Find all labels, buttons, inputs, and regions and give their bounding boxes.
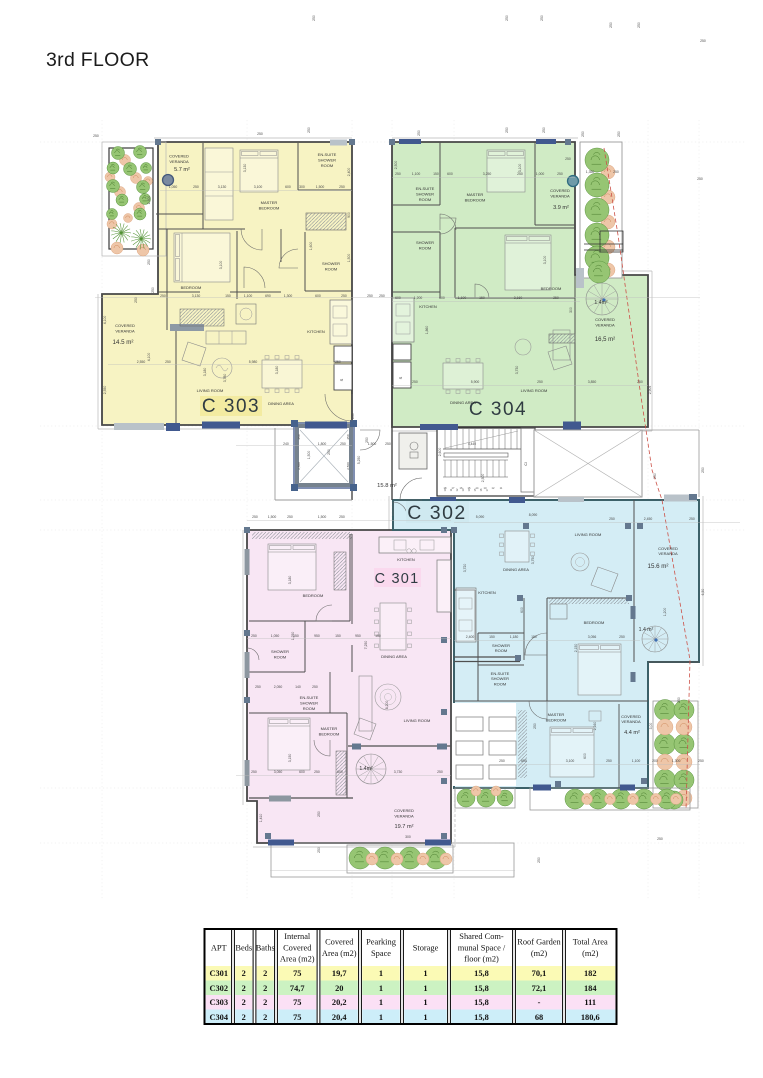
svg-text:150: 150 [433,172,439,176]
svg-text:Covered: Covered [325,938,354,947]
svg-text:2,560: 2,560 [297,462,301,470]
svg-text:3,00: 3,00 [649,723,653,730]
svg-text:250: 250 [606,759,612,763]
svg-text:3,180: 3,180 [275,366,279,375]
svg-text:900: 900 [347,212,351,218]
svg-text:19,7: 19,7 [332,969,347,978]
svg-text:3,730: 3,730 [515,366,519,375]
svg-text:250: 250 [93,134,99,138]
svg-text:BEDROOM: BEDROOM [546,718,567,723]
svg-text:1.4m²: 1.4m² [359,766,373,772]
svg-text:2: 2 [263,1013,267,1022]
svg-text:2,550: 2,550 [137,360,146,364]
svg-text:200: 200 [652,759,658,763]
svg-text:1: 1 [379,998,383,1007]
svg-text:16,5 m²: 16,5 m² [595,337,615,343]
svg-text:LIVING ROOM: LIVING ROOM [404,718,431,723]
svg-text:EN-SUITE: EN-SUITE [318,152,337,157]
svg-text:Area (m2): Area (m2) [280,955,315,964]
svg-text:250: 250 [151,287,155,293]
svg-text:2: 2 [263,969,267,978]
svg-text:1: 1 [423,1013,427,1022]
svg-text:3,100: 3,100 [219,261,223,270]
svg-text:2,500: 2,500 [481,474,485,483]
svg-text:BEDROOM: BEDROOM [541,286,562,291]
svg-text:Baths: Baths [256,943,275,952]
svg-text:3,180: 3,180 [203,368,207,377]
svg-text:250: 250 [317,811,321,817]
svg-text:250: 250 [257,132,263,136]
svg-text:3,250: 3,250 [483,172,492,176]
svg-text:250: 250 [609,22,613,28]
svg-text:BEDROOM: BEDROOM [303,593,324,598]
svg-text:250: 250 [193,185,199,189]
svg-text:2,550: 2,550 [103,386,107,395]
svg-text:250: 250 [565,157,571,161]
svg-text:2,560: 2,560 [346,462,350,470]
svg-text:ROOM: ROOM [321,163,333,168]
svg-text:2: 2 [263,984,267,993]
svg-text:600: 600 [315,294,321,298]
svg-text:VERANDA: VERANDA [394,814,414,819]
svg-text:Storage: Storage [413,943,439,952]
svg-text:1: 1 [423,969,427,978]
svg-text:250: 250 [340,442,346,446]
svg-text:3,130: 3,130 [243,164,247,173]
svg-text:3,100: 3,100 [543,256,547,265]
svg-text:15,8: 15,8 [474,984,489,993]
svg-text:KITCHEN: KITCHEN [419,304,437,309]
svg-text:70,1: 70,1 [532,969,547,978]
svg-text:20,4: 20,4 [332,1013,347,1022]
svg-text:250: 250 [540,15,544,21]
svg-text:72,1: 72,1 [532,984,547,993]
svg-text:5,090: 5,090 [476,515,485,519]
svg-text:250: 250 [698,759,704,763]
svg-text:2: 2 [242,998,246,1007]
svg-text:250: 250 [327,449,331,455]
svg-text:20,2: 20,2 [332,998,347,1007]
svg-text:C 304: C 304 [469,399,527,420]
svg-text:75: 75 [293,998,301,1007]
svg-text:EN-SUITE: EN-SUITE [416,186,435,191]
svg-text:LIVING ROOM: LIVING ROOM [521,388,548,393]
svg-text:2,400: 2,400 [347,168,351,177]
svg-text:VERANDA: VERANDA [169,159,189,164]
svg-text:C304: C304 [209,1013,228,1022]
svg-text:240: 240 [283,442,289,446]
svg-text:250: 250 [700,39,706,43]
svg-text:690: 690 [265,294,271,298]
svg-text:250: 250 [307,127,311,133]
svg-text:150: 150 [335,634,341,638]
svg-text:VERANDA: VERANDA [115,329,135,334]
svg-text:4,100: 4,100 [147,353,151,362]
svg-text:1,350: 1,350 [586,170,595,174]
svg-text:MASTER: MASTER [548,712,565,717]
svg-text:VERANDA: VERANDA [621,719,641,724]
svg-text:DINING AREA: DINING AREA [450,400,476,405]
svg-text:250: 250 [677,697,681,703]
svg-text:5.7 m²: 5.7 m² [174,167,190,173]
svg-text:3,130: 3,130 [192,294,201,298]
svg-text:950: 950 [314,634,320,638]
svg-text:Covered: Covered [283,943,312,952]
svg-text:250: 250 [395,172,401,176]
svg-text:2,160: 2,160 [593,722,597,731]
svg-text:1,200: 1,200 [663,608,667,617]
svg-text:1,300: 1,300 [284,294,293,298]
svg-text:250: 250 [341,294,347,298]
svg-text:250: 250 [165,360,171,364]
svg-text:150: 150 [479,296,485,300]
svg-text:1,200: 1,200 [414,296,423,300]
svg-text:250: 250 [499,759,505,763]
svg-text:MASTER: MASTER [467,192,484,197]
svg-text:250: 250 [581,131,585,137]
svg-text:EN-SUITE: EN-SUITE [300,695,319,700]
svg-text:3,180: 3,180 [288,576,292,585]
svg-text:250: 250 [533,723,537,729]
svg-text:2,500: 2,500 [394,161,398,170]
svg-text:1: 1 [423,984,427,993]
svg-text:3,730: 3,730 [394,770,403,774]
svg-text:ROOM: ROOM [303,706,315,711]
svg-text:5,900: 5,900 [471,380,480,384]
svg-text:DINING AREA: DINING AREA [268,401,294,406]
svg-text:-: - [538,998,541,1007]
svg-text:Beds: Beds [235,943,252,952]
svg-text:250: 250 [317,847,321,853]
svg-text:300: 300 [405,835,411,839]
svg-text:1,100: 1,100 [458,296,467,300]
svg-text:250: 250 [314,770,320,774]
svg-text:600: 600 [520,607,524,613]
svg-text:KITCHEN: KITCHEN [397,557,415,562]
svg-text:250: 250 [312,15,316,21]
svg-text:250: 250 [287,515,293,519]
svg-text:5,980: 5,980 [249,360,258,364]
svg-text:6,50: 6,50 [701,589,705,596]
svg-text:2,905: 2,905 [648,386,652,395]
svg-text:2: 2 [242,984,246,993]
svg-text:1,500: 1,500 [316,185,325,189]
svg-text:LIVING ROOM: LIVING ROOM [197,388,224,393]
svg-text:1,500: 1,500 [318,515,327,519]
svg-text:1,410: 1,410 [259,814,263,823]
svg-text:APT: APT [211,943,227,952]
svg-text:S: S [339,378,344,381]
svg-text:250: 250 [537,380,543,384]
svg-text:1: 1 [379,969,383,978]
svg-text:3,850: 3,850 [588,380,597,384]
svg-text:250: 250 [134,297,138,303]
svg-text:SHOWER: SHOWER [300,700,318,705]
svg-text:2,150: 2,150 [574,644,578,653]
svg-text:4,440: 4,440 [468,442,476,446]
svg-text:19.7 m²: 19.7 m² [395,824,414,830]
svg-text:600: 600 [395,296,401,300]
svg-text:250: 250 [379,294,385,298]
svg-text:250: 250 [339,515,345,519]
svg-text:2,450: 2,450 [644,517,653,521]
svg-text:Shared Com-: Shared Com- [459,932,504,941]
svg-text:600: 600 [337,770,343,774]
svg-text:1,250: 1,250 [291,632,295,641]
svg-text:1.4 m²: 1.4 m² [639,627,654,633]
svg-text:7,250: 7,250 [364,641,368,650]
svg-text:KITCHEN: KITCHEN [478,590,496,595]
svg-text:COVERED: COVERED [169,154,189,159]
svg-text:2,400: 2,400 [466,635,475,639]
svg-text:111: 111 [584,998,596,1007]
svg-text:3,130: 3,130 [218,185,227,189]
svg-text:1,180: 1,180 [510,635,519,639]
svg-text:(m2): (m2) [531,949,547,958]
svg-text:250: 250 [147,259,151,265]
svg-text:15.8 m²: 15.8 m² [377,483,397,489]
svg-text:BEDROOM: BEDROOM [584,620,605,625]
svg-text:600: 600 [439,296,445,300]
svg-text:250: 250 [653,473,657,479]
svg-text:COVERED: COVERED [595,317,615,322]
svg-text:COVERED: COVERED [394,808,414,813]
svg-text:8,090: 8,090 [529,513,538,517]
svg-text:Pearking: Pearking [366,938,397,947]
svg-text:250: 250 [637,22,641,28]
svg-text:1,100: 1,100 [632,759,641,763]
svg-text:C 303: C 303 [202,396,260,417]
svg-text:150: 150 [489,635,495,639]
svg-text:250: 250 [335,360,341,364]
svg-text:3,750: 3,750 [531,556,535,565]
svg-text:ROOM: ROOM [494,681,506,686]
svg-text:S: S [398,376,403,379]
svg-text:250: 250 [367,294,373,298]
svg-text:150: 150 [225,294,231,298]
svg-text:250: 250 [505,127,509,133]
svg-text:3,100: 3,100 [518,164,522,173]
svg-text:C303: C303 [209,998,228,1007]
svg-text:MASTER: MASTER [321,726,338,731]
svg-text:C302: C302 [209,984,228,993]
svg-text:250: 250 [312,685,318,689]
svg-text:2,500: 2,500 [147,196,151,205]
svg-text:250: 250 [701,467,705,473]
svg-text:SHOWER: SHOWER [416,192,434,197]
svg-text:600: 600 [447,172,453,176]
svg-text:COVERED: COVERED [115,323,135,328]
svg-text:75: 75 [293,969,301,978]
svg-text:250: 250 [617,131,621,137]
svg-text:600: 600 [285,185,291,189]
svg-text:1,300: 1,300 [672,759,681,763]
svg-text:2: 2 [242,969,246,978]
svg-text:1,500: 1,500 [268,515,277,519]
svg-text:1.4m²: 1.4m² [594,300,608,306]
svg-text:68: 68 [535,1013,543,1022]
svg-text:250: 250 [637,380,643,384]
svg-text:VERANDA: VERANDA [550,194,570,199]
svg-text:3,056: 3,056 [588,635,597,639]
svg-text:3,720: 3,720 [463,564,467,573]
svg-text:15.6 m²: 15.6 m² [648,563,669,570]
svg-text:3rd FLOOR: 3rd FLOOR [46,49,149,71]
svg-text:250: 250 [160,294,166,298]
svg-text:LIVING ROOM: LIVING ROOM [575,532,602,537]
svg-text:1,100: 1,100 [244,294,253,298]
svg-text:ROOM: ROOM [419,246,431,251]
svg-text:250: 250 [557,172,563,176]
svg-text:250: 250 [339,185,345,189]
svg-text:250: 250 [542,127,546,133]
svg-text:1,800: 1,800 [318,442,327,446]
svg-text:C 301: C 301 [375,571,420,587]
svg-text:3,780: 3,780 [223,374,227,383]
svg-text:15,8: 15,8 [474,969,489,978]
svg-text:600: 600 [583,753,587,759]
svg-text:ROOM: ROOM [495,648,507,653]
svg-text:2: 2 [263,998,267,1007]
svg-text:2: 2 [242,1013,246,1022]
svg-text:Space: Space [371,949,391,958]
svg-text:250: 250 [609,517,615,521]
svg-text:COVERED: COVERED [550,188,570,193]
svg-text:1,050: 1,050 [271,634,280,638]
svg-text:BEDROOM: BEDROOM [465,198,486,203]
svg-text:Internal: Internal [284,932,311,941]
svg-text:1,500: 1,500 [347,254,351,263]
svg-text:150: 150 [375,634,381,638]
svg-text:300: 300 [569,307,573,313]
svg-text:300: 300 [299,185,305,189]
svg-text:3.9 m²: 3.9 m² [553,205,569,211]
svg-text:Roof Garden: Roof Garden [517,938,561,947]
svg-text:1: 1 [379,1013,383,1022]
svg-text:250: 250 [657,837,663,841]
svg-text:150: 150 [531,635,537,639]
svg-text:250: 250 [689,517,695,521]
svg-text:ROOM: ROOM [325,267,337,272]
svg-text:250: 250 [297,434,301,439]
svg-text:250: 250 [351,413,355,419]
svg-text:250: 250 [437,770,443,774]
svg-text:3,150: 3,150 [288,754,292,763]
svg-text:KITCHEN: KITCHEN [307,329,325,334]
svg-text:munal Space /: munal Space / [458,943,506,952]
svg-text:MASTER: MASTER [261,200,278,205]
svg-text:2,050: 2,050 [274,685,283,689]
svg-text:1: 1 [423,998,427,1007]
svg-text:14.5 m²: 14.5 m² [113,339,134,346]
svg-text:180,6: 180,6 [581,1013,600,1022]
svg-text:250: 250 [385,442,391,446]
svg-text:250: 250 [537,857,541,863]
svg-text:DINING AREA: DINING AREA [381,654,407,659]
svg-text:Cl: Cl [524,462,528,465]
svg-text:VERANDA: VERANDA [658,551,678,556]
svg-text:3,050: 3,050 [274,770,283,774]
svg-text:250: 250 [417,130,421,136]
svg-text:Total Area: Total Area [573,938,608,947]
svg-text:250: 250 [697,177,703,181]
svg-text:250: 250 [412,380,418,384]
svg-text:1,100: 1,100 [412,172,421,176]
svg-text:1: 1 [379,984,383,993]
svg-text:4.4 m²: 4.4 m² [624,730,640,736]
svg-text:250: 250 [251,770,257,774]
svg-text:250: 250 [255,685,261,689]
svg-text:690: 690 [521,759,527,763]
svg-text:140: 140 [295,685,301,689]
svg-text:floor (m2): floor (m2) [464,955,499,964]
svg-text:3,100: 3,100 [254,185,263,189]
svg-text:250: 250 [346,434,350,439]
svg-text:3,100: 3,100 [566,759,575,763]
svg-text:250: 250 [553,296,559,300]
svg-text:2,600: 2,600 [438,448,442,457]
svg-text:75: 75 [293,1013,301,1022]
svg-text:250: 250 [251,634,257,638]
svg-text:SHOWER: SHOWER [416,240,434,245]
svg-text:BEDROOM: BEDROOM [259,206,280,211]
svg-text:VERANDA: VERANDA [595,323,615,328]
svg-text:950: 950 [355,634,361,638]
svg-text:ROOM: ROOM [419,197,431,202]
svg-text:15,8: 15,8 [474,998,489,1007]
svg-text:250: 250 [505,15,509,21]
svg-text:8,200: 8,200 [385,701,389,710]
svg-text:BEDROOM: BEDROOM [319,732,340,737]
svg-text:1,600: 1,600 [309,242,313,251]
svg-text:(m2): (m2) [582,949,598,958]
svg-text:SHOWER: SHOWER [322,261,340,266]
svg-text:600: 600 [299,770,305,774]
svg-text:1,000: 1,000 [536,172,545,176]
svg-text:15,8: 15,8 [474,1013,489,1022]
svg-text:SHOWER: SHOWER [271,649,289,654]
svg-text:BEDROOM: BEDROOM [181,285,202,290]
svg-text:20: 20 [335,984,343,993]
svg-text:184: 184 [584,984,597,993]
svg-text:1,050: 1,050 [169,185,178,189]
svg-text:182: 182 [584,969,597,978]
svg-text:250: 250 [613,170,619,174]
svg-text:250: 250 [252,515,258,519]
svg-text:ROOM: ROOM [274,655,286,660]
svg-text:74,7: 74,7 [290,984,305,993]
svg-text:DINING AREA: DINING AREA [503,567,529,572]
svg-text:1,500: 1,500 [307,451,311,460]
svg-text:3,160: 3,160 [514,296,523,300]
svg-text:1,500: 1,500 [368,442,377,446]
svg-text:250: 250 [619,635,625,639]
svg-text:SHOWER: SHOWER [318,158,336,163]
svg-text:4,100: 4,100 [103,316,107,325]
svg-text:250: 250 [365,437,369,443]
svg-text:1,860: 1,860 [425,326,429,335]
svg-text:C301: C301 [209,969,228,978]
svg-text:Area (m2): Area (m2) [322,949,357,958]
svg-text:5,250: 5,250 [357,456,361,465]
